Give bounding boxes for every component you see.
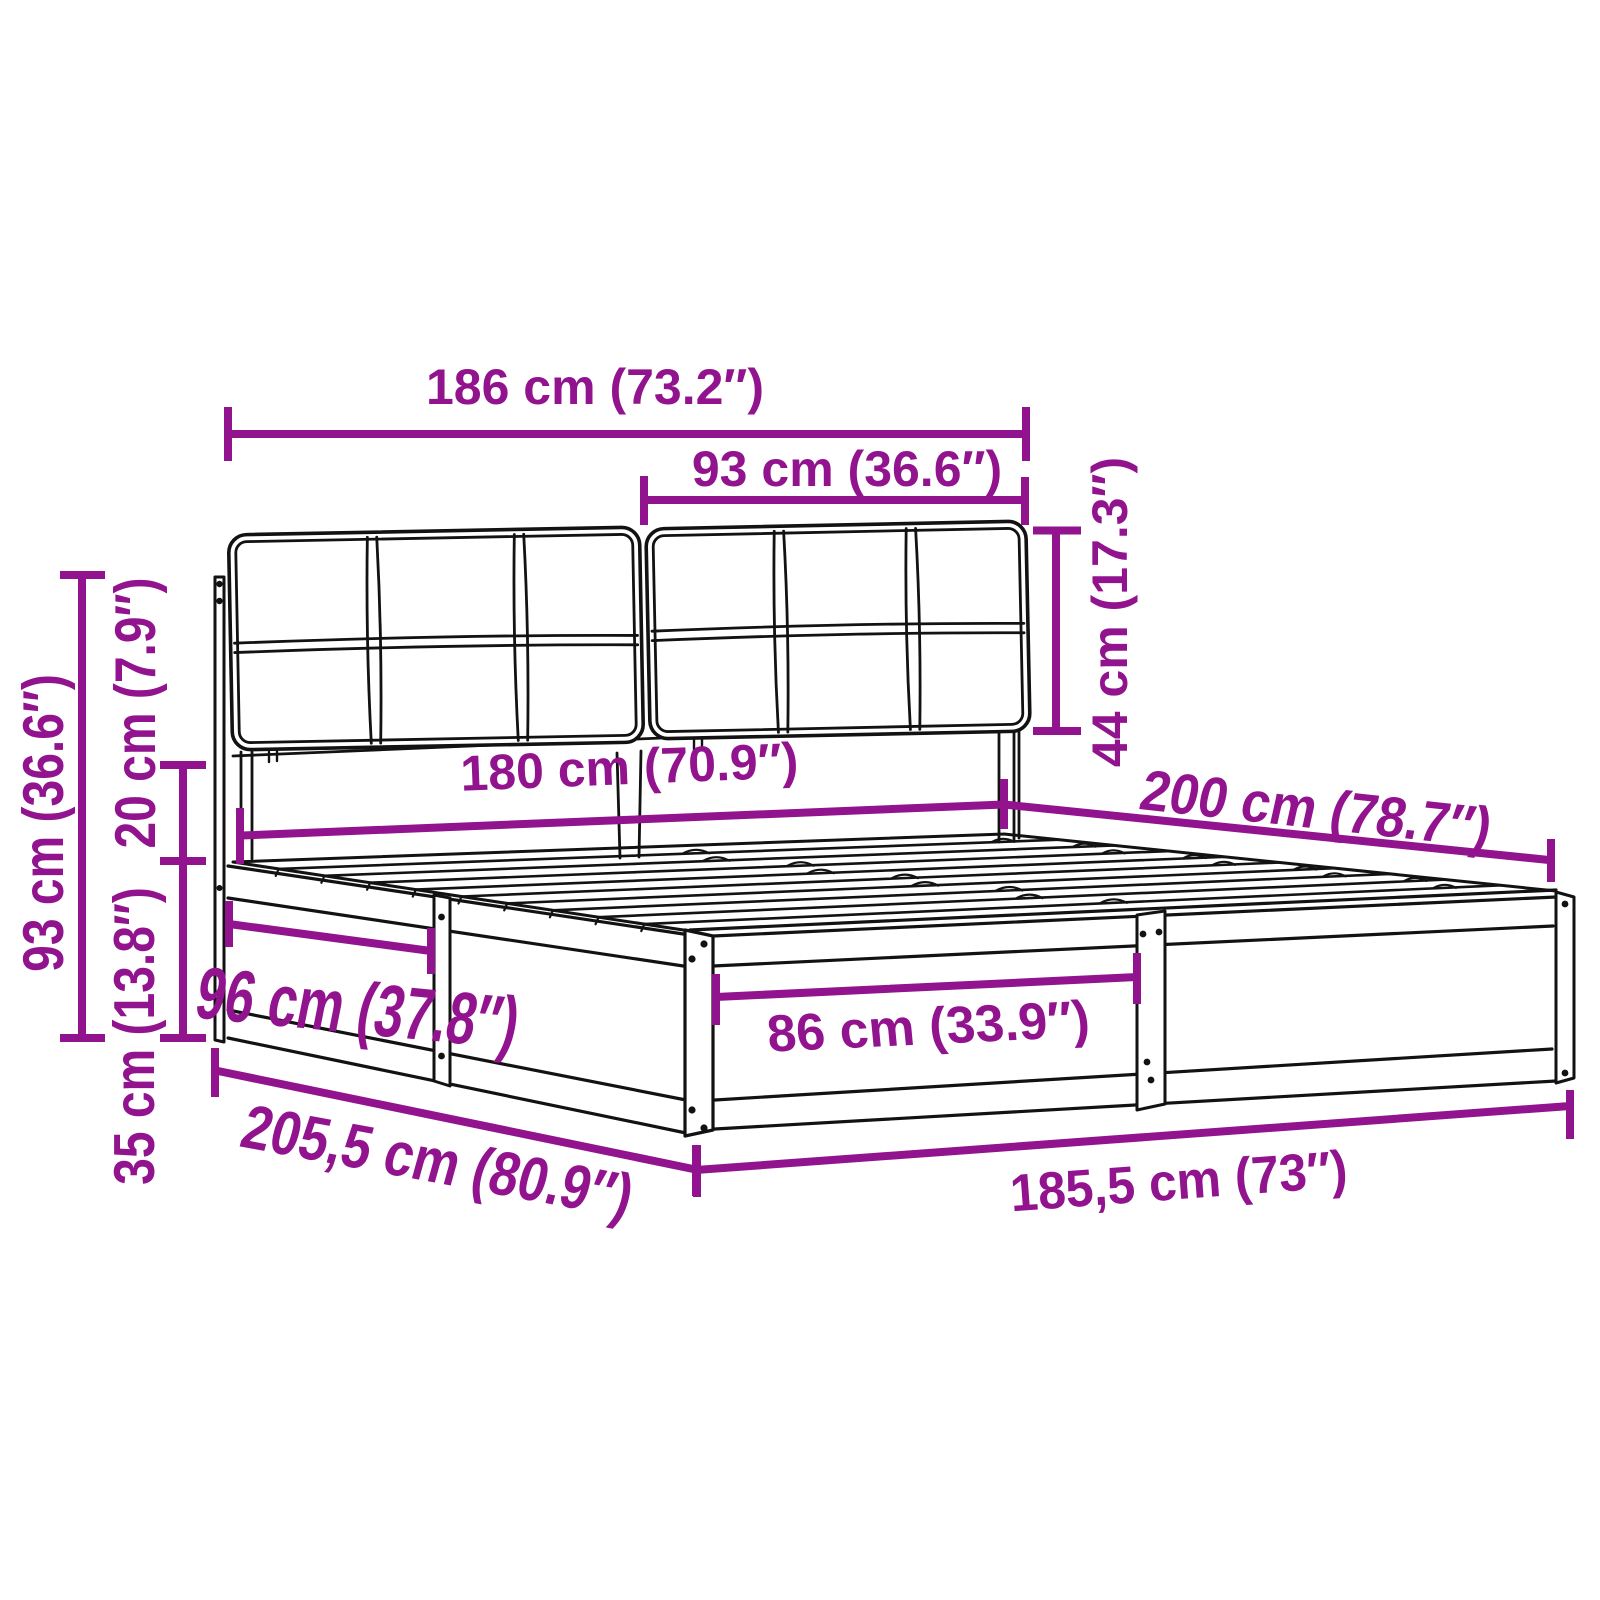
svg-text:93 cm (36.6″): 93 cm (36.6″)	[12, 674, 76, 972]
svg-text:44 cm (17.3″): 44 cm (17.3″)	[1082, 457, 1138, 767]
svg-text:20 cm (7.9″): 20 cm (7.9″)	[104, 577, 168, 848]
svg-text:186 cm (73.2″): 186 cm (73.2″)	[426, 359, 764, 415]
svg-text:35 cm (13.8″): 35 cm (13.8″)	[103, 887, 167, 1185]
svg-text:93 cm (36.6″): 93 cm (36.6″)	[692, 441, 1002, 497]
